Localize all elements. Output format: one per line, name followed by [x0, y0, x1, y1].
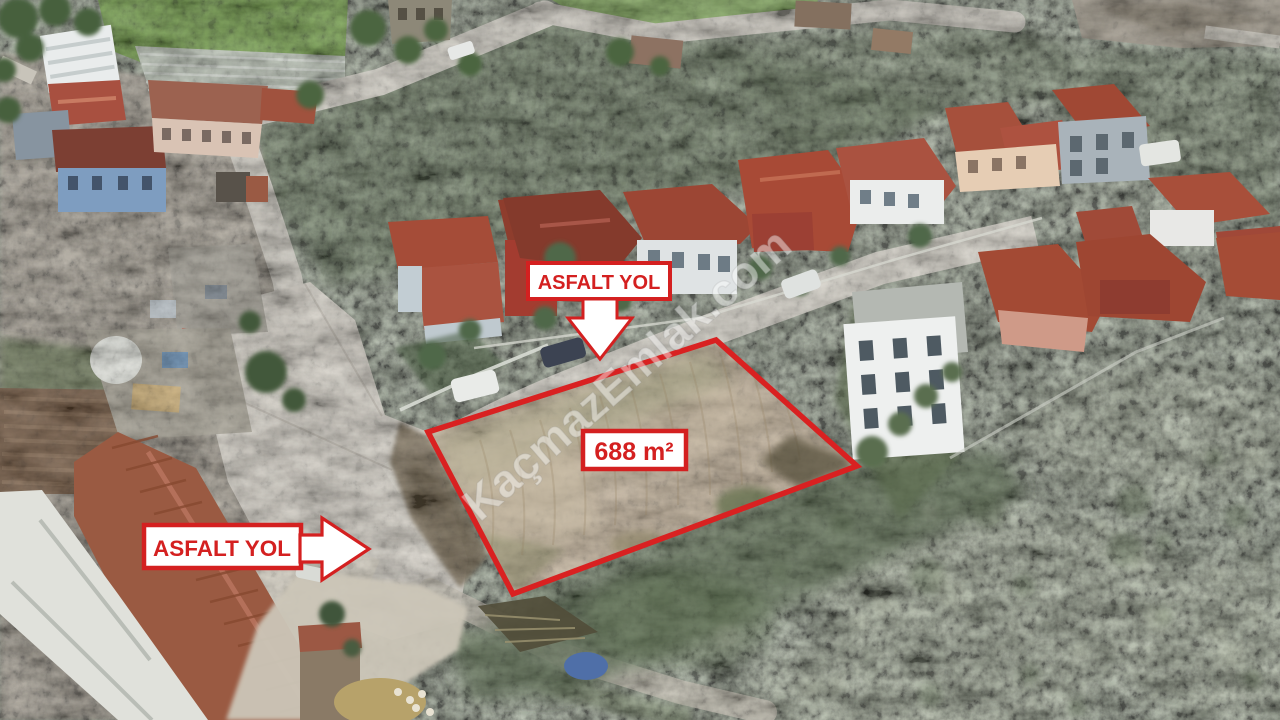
- svg-text:ASFALT YOL: ASFALT YOL: [153, 536, 291, 561]
- svg-text:688 m²: 688 m²: [594, 438, 673, 466]
- svg-text:ASFALT YOL: ASFALT YOL: [538, 272, 661, 294]
